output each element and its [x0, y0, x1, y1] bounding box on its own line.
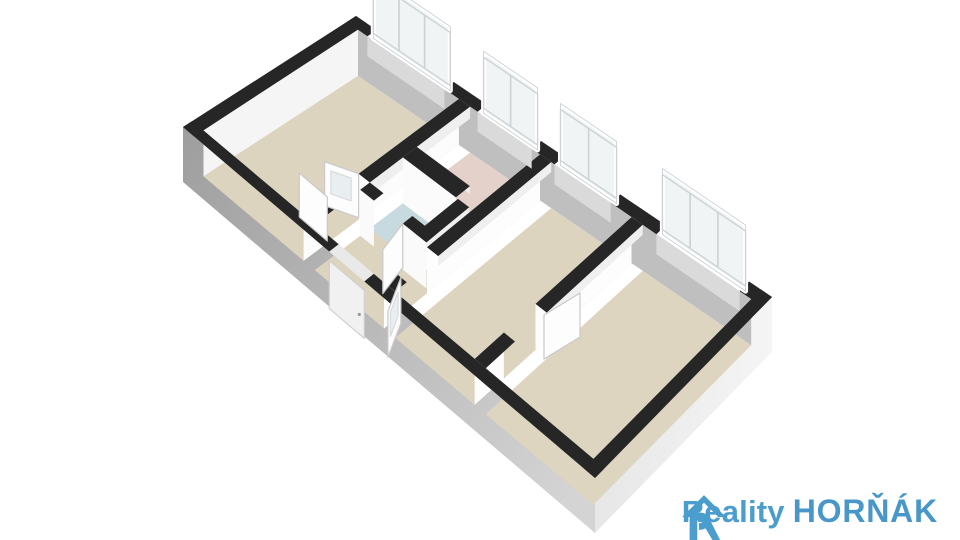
- floor-plan-page: Reality HORŇÁK: [0, 0, 960, 540]
- entrance-door-handle: [358, 313, 361, 316]
- logo-text-hornak: HORŇÁK: [793, 493, 938, 530]
- logo-house-icon: [682, 493, 726, 540]
- agency-logo: Reality HORŇÁK: [682, 493, 938, 530]
- floor-plan-3d: [0, 0, 960, 540]
